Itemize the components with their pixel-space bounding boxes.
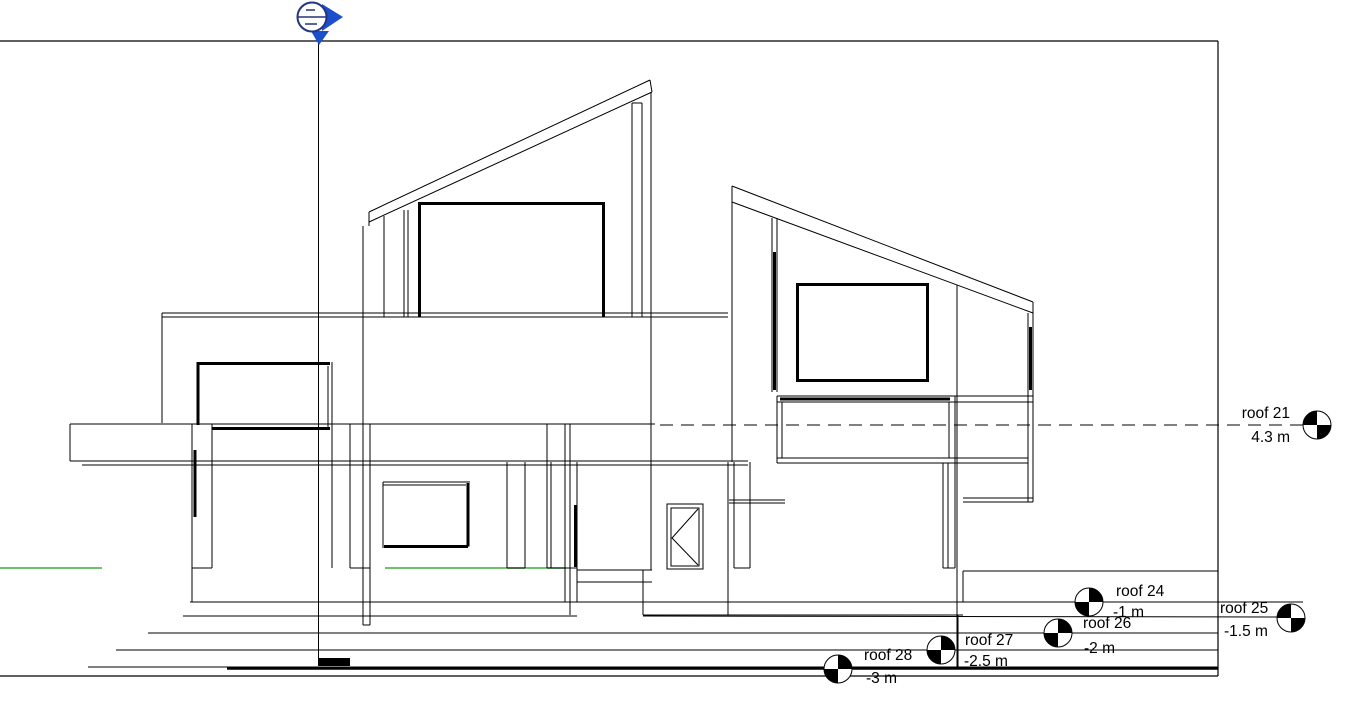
level-elevation-label[interactable]: -1.5 m bbox=[1224, 623, 1268, 640]
level-line-roof-26[interactable]: roof 26 -2 m bbox=[148, 615, 1218, 657]
level-head-icon[interactable] bbox=[824, 655, 852, 683]
section-head-icon[interactable] bbox=[297, 3, 343, 46]
level-name-label[interactable]: roof 27 bbox=[965, 632, 1013, 649]
entry-steps bbox=[577, 462, 963, 615]
level-head-icon[interactable] bbox=[1277, 604, 1305, 632]
level-head-icon[interactable] bbox=[1075, 588, 1103, 616]
level-elevation-label[interactable]: 4.3 m bbox=[1251, 429, 1290, 446]
level-line-roof-21[interactable]: roof 21 4.3 m bbox=[660, 405, 1331, 446]
level-elevation-label[interactable]: -3 m bbox=[866, 670, 897, 687]
entry-door bbox=[667, 504, 703, 569]
level-name-label[interactable]: roof 21 bbox=[1242, 405, 1290, 422]
level-name-label[interactable]: roof 25 bbox=[1220, 600, 1268, 617]
level-name-label[interactable]: roof 28 bbox=[864, 647, 912, 664]
level-elevation-label[interactable]: -2 m bbox=[1084, 640, 1115, 657]
level-name-label[interactable]: roof 24 bbox=[1116, 583, 1165, 600]
level-name-label[interactable]: roof 26 bbox=[1083, 615, 1131, 632]
lower-level-posts bbox=[192, 424, 577, 625]
window-thin-edges bbox=[328, 317, 604, 548]
terrain-lines[interactable] bbox=[0, 568, 1218, 669]
section-line-depth-marker[interactable] bbox=[318, 658, 350, 666]
building-elevation-linework[interactable] bbox=[70, 80, 1218, 667]
drawing-canvas: roof 21 4.3 m roof 24 -1 m roof 25 -1.5 … bbox=[0, 0, 1371, 708]
level-head-icon[interactable] bbox=[927, 636, 955, 664]
elevation-drawing-canvas: roof 21 4.3 m roof 24 -1 m roof 25 -1.5 … bbox=[0, 0, 1371, 708]
level-head-icon[interactable] bbox=[1303, 411, 1331, 439]
left-body-walls bbox=[70, 313, 748, 465]
window-thick-frames bbox=[195, 204, 1031, 568]
section-marker[interactable] bbox=[297, 3, 350, 667]
level-line-roof-28[interactable]: roof 28 -3 m bbox=[88, 647, 1218, 687]
crop-region-border[interactable] bbox=[0, 41, 1218, 676]
level-head-icon[interactable] bbox=[1044, 619, 1072, 647]
